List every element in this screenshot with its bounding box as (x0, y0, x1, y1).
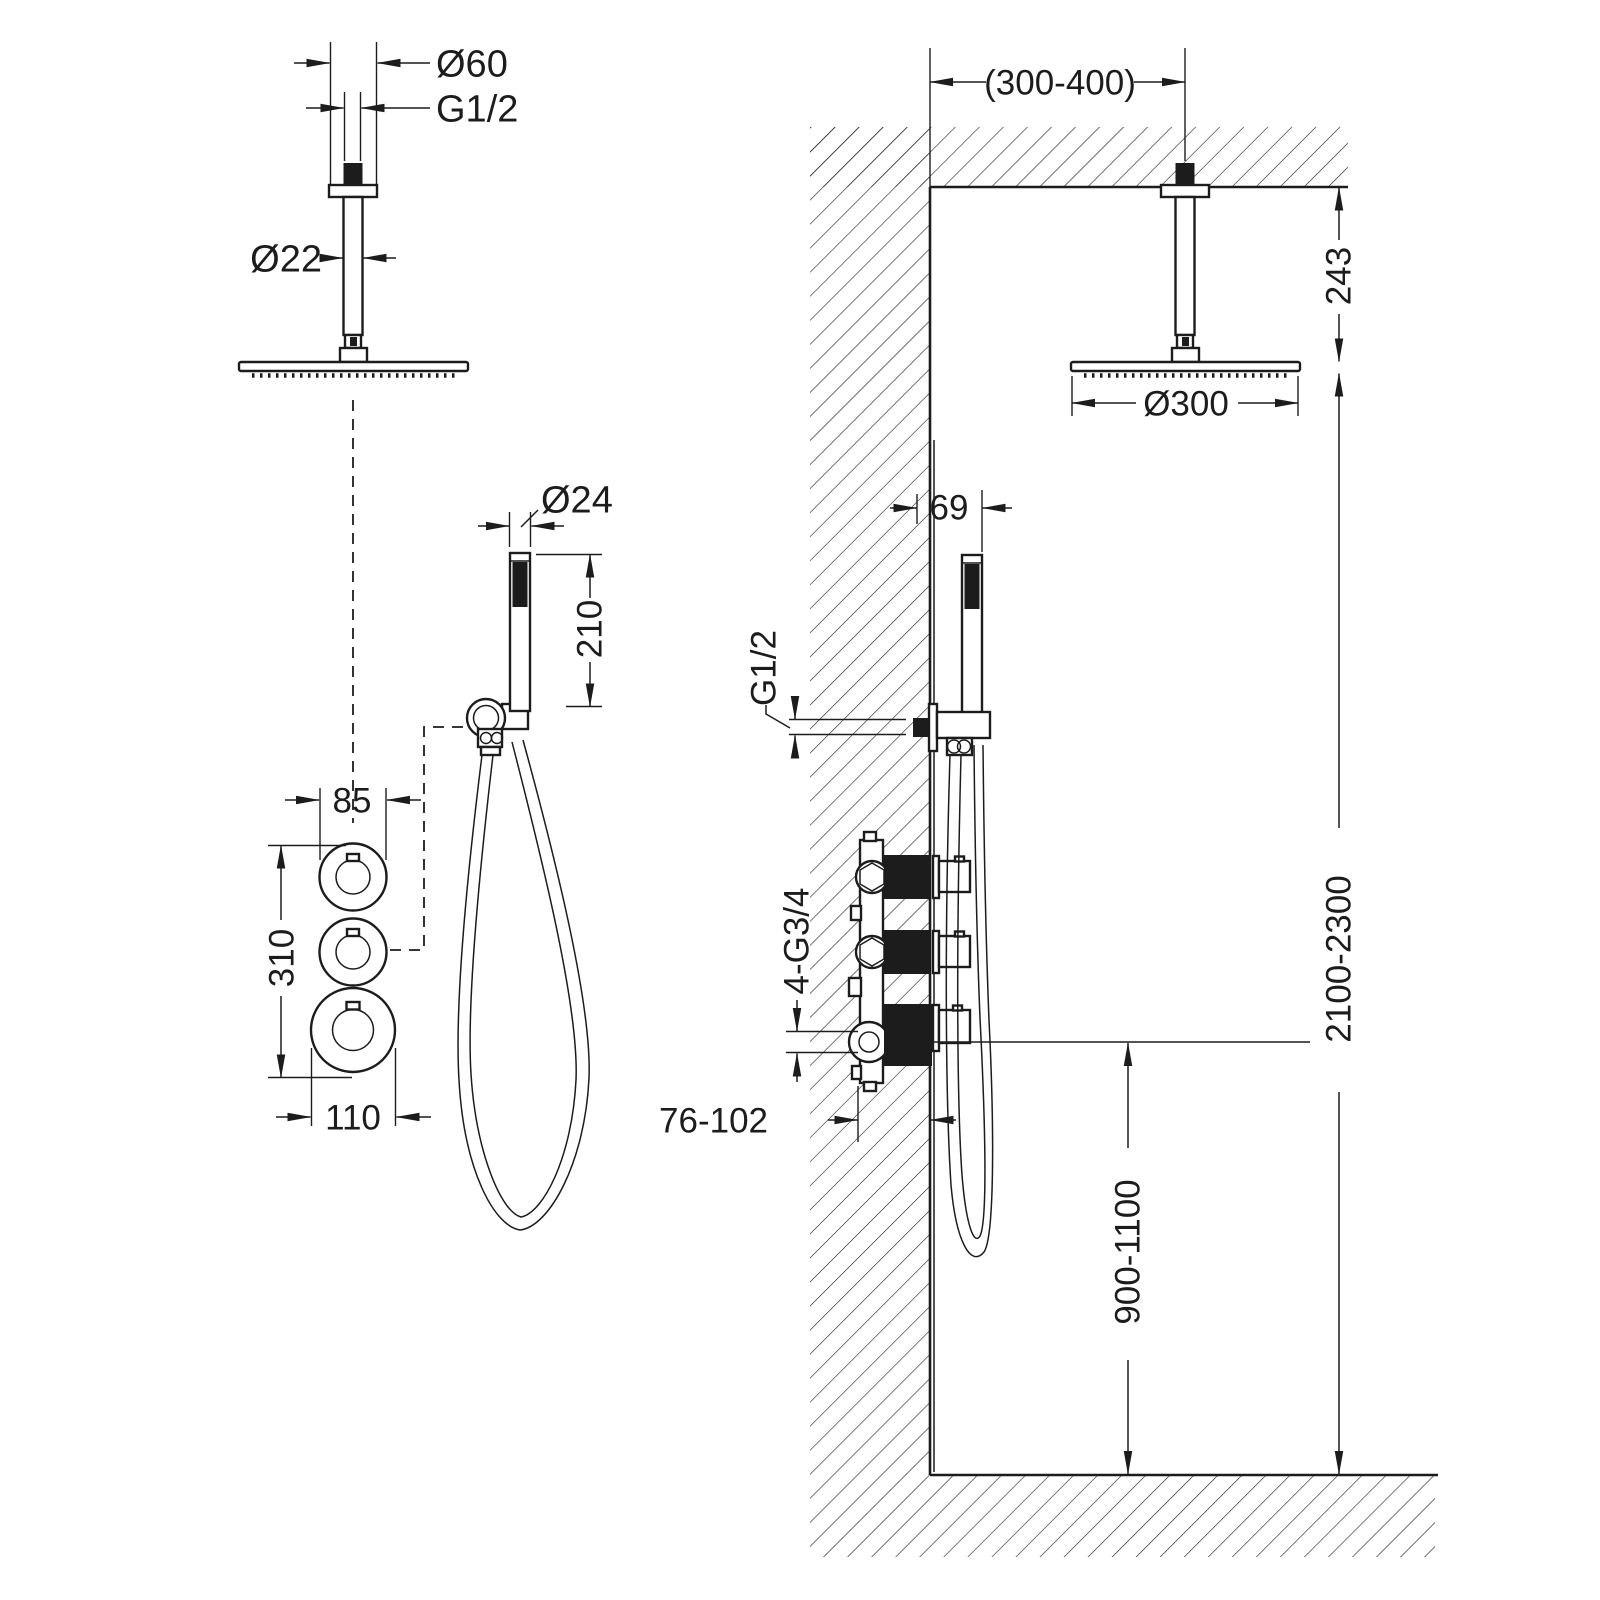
dim-label: Ø22 (250, 238, 322, 280)
handle-stub-1 (939, 861, 970, 892)
handle-knurl-side (965, 564, 980, 609)
dim-head-thread: G1/2 (306, 88, 518, 161)
valve-cartridge-1 (884, 855, 930, 899)
handle-stub-2 (939, 936, 970, 967)
dim-valve-height-from-floor: 900-1100 (1108, 1043, 1147, 1474)
dim-arm-diameter: Ø22 (250, 238, 396, 280)
g34-fitting-1 (856, 861, 888, 893)
hose-front-outer (458, 740, 589, 1230)
plate-tab-top (864, 832, 876, 841)
dim-label: 76-102 (659, 1101, 768, 1140)
plate-clip-3 (852, 1066, 861, 1079)
plate-clip-1 (851, 906, 861, 920)
dim-label: 85 (333, 781, 372, 820)
dim-label: Ø300 (1143, 384, 1229, 423)
holder-wall-plate (929, 704, 937, 751)
valve-knob-3 (311, 988, 395, 1072)
floor-section-hatch (930, 1475, 1435, 1557)
concealed-valve-body (849, 832, 970, 1091)
g34-fitting-2 (856, 936, 888, 968)
arm-ceiling-flange (1161, 185, 1209, 197)
hose-front-inner (470, 742, 576, 1217)
arm-collar-detail (350, 337, 357, 346)
knob-1-index (347, 854, 359, 861)
dim-label: 110 (325, 1098, 381, 1137)
head-connector (1172, 348, 1199, 362)
valve-to-holder-dashed-link (390, 727, 463, 950)
handle-stub-3 (939, 1010, 970, 1043)
front-view (239, 163, 589, 1230)
arm-pipe (1176, 197, 1195, 335)
knob-2-index (347, 929, 359, 936)
arm-pipe (344, 197, 363, 335)
valve-cartridge-2 (884, 930, 930, 974)
dim-head-diameter: Ø300 (1072, 376, 1298, 423)
dim-head-height-from-floor: 2100-2300 (1319, 374, 1358, 1475)
dim-label: Ø60 (436, 43, 508, 85)
dim-handshower-diameter: Ø24 (478, 479, 613, 547)
dim-label: Ø24 (541, 479, 613, 521)
g34-fitting-3 (849, 1022, 889, 1062)
arm-thread-connector (344, 163, 363, 185)
holder-arm-side (937, 712, 990, 738)
technical-drawing-sheet: Ø60 G1/2 Ø22 Ø24 (0, 0, 1600, 1600)
dim-label: 69 (930, 488, 969, 527)
dim-handshower-length: 210 (536, 555, 609, 707)
shower-installation-drawing: Ø60 G1/2 Ø22 Ø24 (0, 0, 1600, 1600)
arm-collar-detail (1182, 337, 1189, 346)
rain-shower-head (239, 362, 468, 371)
valve-cartridge-3 (884, 1004, 932, 1066)
head-connector (340, 348, 367, 362)
handle-knurl-front (513, 562, 528, 607)
dim-label: 210 (570, 600, 609, 658)
dim-label: G1/2 (744, 630, 783, 706)
dim-label: 2100-2300 (1319, 875, 1358, 1042)
dim-label: G1/2 (436, 88, 518, 130)
valve-trim-front (311, 844, 395, 1073)
dim-head-drop-from-ceiling: 243 (1319, 188, 1358, 362)
arm-thread-connector (1176, 163, 1195, 185)
handle-button-2 (955, 932, 964, 937)
knob-3-index (347, 1002, 360, 1010)
plate-tab-bottom (864, 1082, 876, 1091)
dim-label: 900-1100 (1108, 1179, 1147, 1324)
side-rain-shower-arm (1071, 163, 1300, 376)
hose-nut (481, 747, 500, 755)
arm-ceiling-flange (329, 185, 377, 197)
hose-side-inner (958, 745, 985, 1238)
dim-label: (300-400) (984, 63, 1136, 102)
hose-connector-nut (478, 729, 502, 747)
dim-label: 243 (1319, 247, 1358, 305)
plate-clip-2 (849, 978, 861, 996)
dim-label: 4-G3/4 (777, 888, 816, 995)
dim-label: 310 (262, 929, 301, 987)
rain-shower-head (1071, 362, 1300, 371)
g12-wall-fitting (913, 718, 929, 737)
